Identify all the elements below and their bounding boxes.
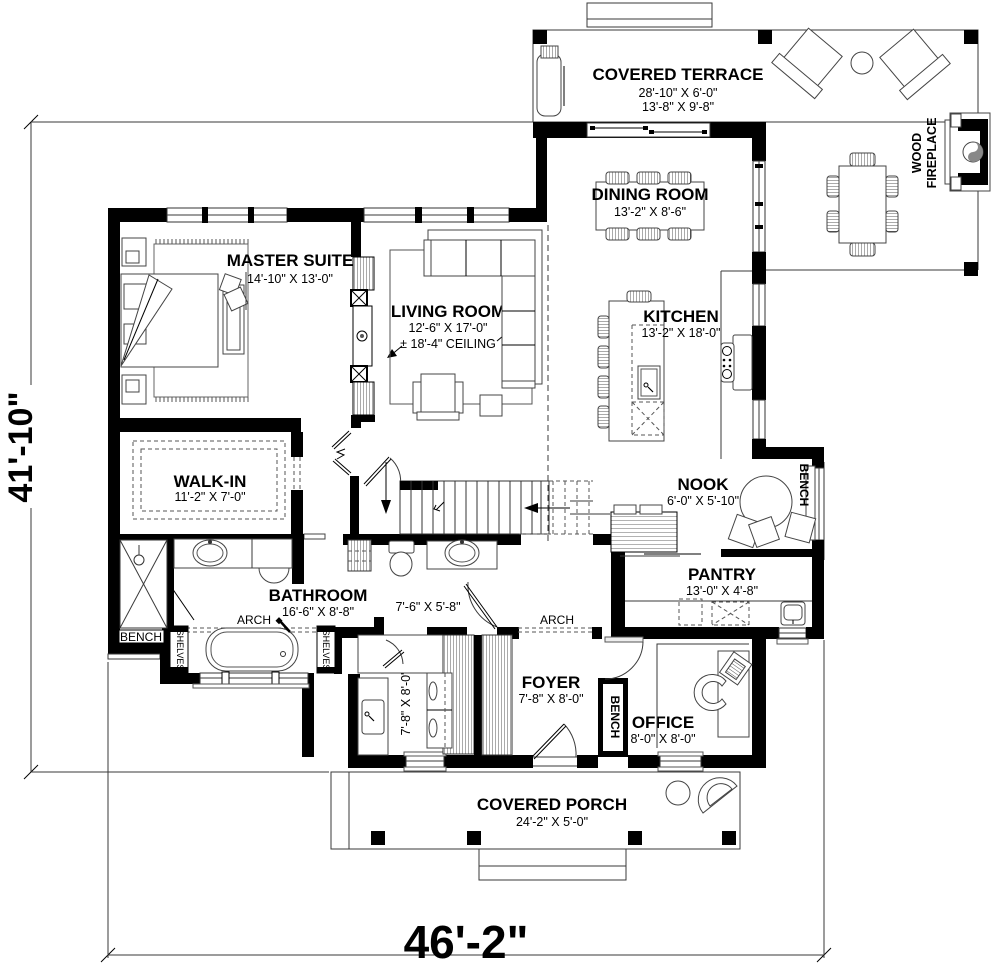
svg-text:12'-6" X 17'-0": 12'-6" X 17'-0" (409, 321, 488, 335)
svg-text:DINING ROOM: DINING ROOM (591, 185, 708, 204)
svg-text:LIVING ROOM: LIVING ROOM (391, 302, 505, 321)
svg-text:13'-2" X 18'-0": 13'-2" X 18'-0" (642, 326, 721, 340)
svg-text:28'-10" X 6'-0": 28'-10" X 6'-0" (639, 86, 718, 100)
svg-text:WALK-IN: WALK-IN (174, 472, 247, 491)
svg-text:FIREPLACE: FIREPLACE (925, 118, 939, 189)
svg-text:16'-6" X 8'-8": 16'-6" X 8'-8" (282, 605, 354, 619)
svg-text:PANTRY: PANTRY (688, 565, 757, 584)
svg-text:ARCH: ARCH (540, 613, 574, 627)
svg-text:7'-8" X 8'-0": 7'-8" X 8'-0" (518, 692, 583, 706)
svg-text:24'-2" X 5'-0": 24'-2" X 5'-0" (516, 815, 588, 829)
svg-text:KITCHEN: KITCHEN (643, 307, 719, 326)
svg-text:13'-0" X 4'-8": 13'-0" X 4'-8" (686, 584, 758, 598)
svg-text:MASTER SUITE: MASTER SUITE (227, 251, 354, 270)
svg-text:COVERED PORCH: COVERED PORCH (477, 795, 627, 814)
svg-text:ARCH: ARCH (237, 613, 271, 627)
svg-text:SHELVES: SHELVES (321, 630, 331, 671)
svg-text:± 18'-4" CEILING: ± 18'-4" CEILING (400, 337, 496, 351)
svg-text:8'-0" X 8'-0": 8'-0" X 8'-0" (630, 732, 695, 746)
svg-text:BENCH: BENCH (608, 696, 622, 739)
svg-text:BENCH: BENCH (797, 464, 811, 507)
svg-text:OFFICE: OFFICE (632, 713, 694, 732)
svg-text:SHELVES: SHELVES (175, 630, 185, 671)
svg-text:13'-8" X 9'-8": 13'-8" X 9'-8" (642, 100, 714, 114)
svg-text:13'-2" X 8'-6": 13'-2" X 8'-6" (614, 205, 686, 219)
svg-text:BENCH: BENCH (120, 630, 162, 644)
svg-text:46'-2": 46'-2" (404, 916, 529, 964)
svg-text:14'-10" X 13'-0": 14'-10" X 13'-0" (247, 272, 333, 286)
svg-text:WOOD: WOOD (910, 133, 924, 173)
svg-text:NOOK: NOOK (678, 475, 730, 494)
svg-text:41'-10": 41'-10" (2, 391, 40, 502)
svg-text:FOYER: FOYER (522, 673, 581, 692)
svg-text:6'-0" X 5'-10": 6'-0" X 5'-10" (667, 494, 739, 508)
svg-text:7'-8" X 8'-0": 7'-8" X 8'-0" (399, 670, 413, 735)
svg-text:11'-2" X 7'-0": 11'-2" X 7'-0" (174, 490, 245, 504)
svg-text:BATHROOM: BATHROOM (269, 586, 368, 605)
svg-text:COVERED TERRACE: COVERED TERRACE (593, 65, 764, 84)
svg-text:7'-6" X 5'-8": 7'-6" X 5'-8" (395, 600, 460, 614)
